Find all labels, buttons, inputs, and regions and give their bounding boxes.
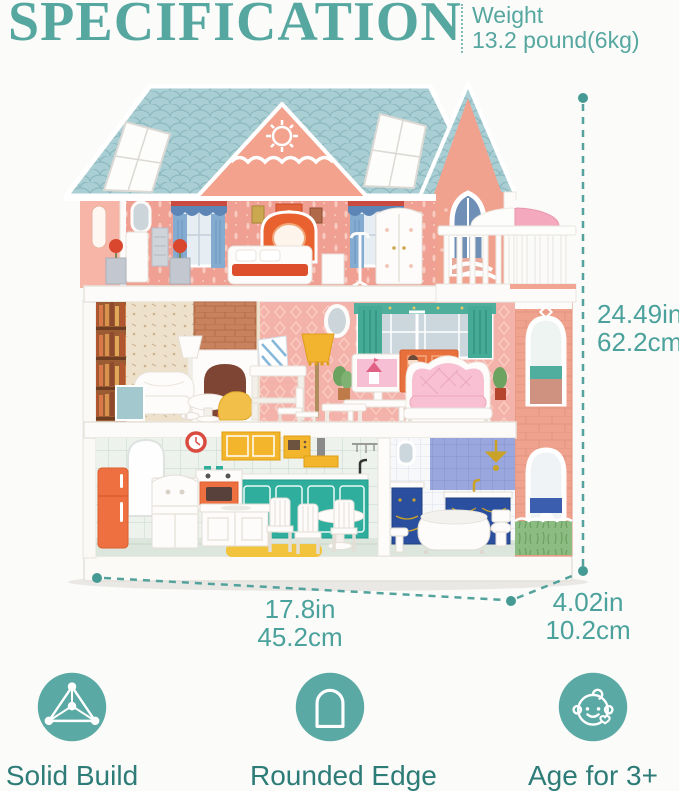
hutch <box>152 475 198 548</box>
bathtub <box>418 510 490 554</box>
side-wall <box>515 302 572 556</box>
feature-label: Age for 3+ <box>513 760 673 791</box>
height-dimension-label: 24.49in 62.2cm <box>597 300 679 356</box>
bathroom <box>378 438 515 556</box>
fridge <box>98 468 128 548</box>
sink-island <box>200 504 270 546</box>
feature-age: Age for 3+ <box>513 670 673 791</box>
house-base <box>84 556 572 581</box>
specification-page: SPECIFICATION Weight 13.2 pound(6kg) <box>0 0 679 791</box>
blue-console <box>116 386 144 420</box>
feature-rounded-edge: Rounded Edge <box>250 670 410 791</box>
feature-label: Rounded Edge <box>250 760 410 791</box>
wardrobe <box>376 208 422 284</box>
wall-clock <box>187 433 205 451</box>
oval-mirror <box>326 306 348 336</box>
solid-build-icon <box>35 670 109 744</box>
pink-sofa <box>404 356 492 424</box>
plant-right <box>493 367 507 400</box>
width-dimension-label: 17.8in 45.2cm <box>215 595 385 651</box>
bath-mirror <box>398 442 414 464</box>
roof <box>64 86 486 198</box>
rounded-edge-icon <box>293 670 367 744</box>
feature-label: Solid Build <box>0 760 152 791</box>
baby-face-icon <box>556 670 630 744</box>
nightstand <box>322 254 344 284</box>
bath-divider-wall <box>378 438 390 556</box>
depth-dimension-label: 4.02in 10.2cm <box>528 588 648 644</box>
upper-cabinets <box>222 432 310 460</box>
living-room <box>96 302 515 424</box>
feature-solid-build: Solid Build <box>0 670 152 791</box>
grass-trim <box>515 521 572 555</box>
